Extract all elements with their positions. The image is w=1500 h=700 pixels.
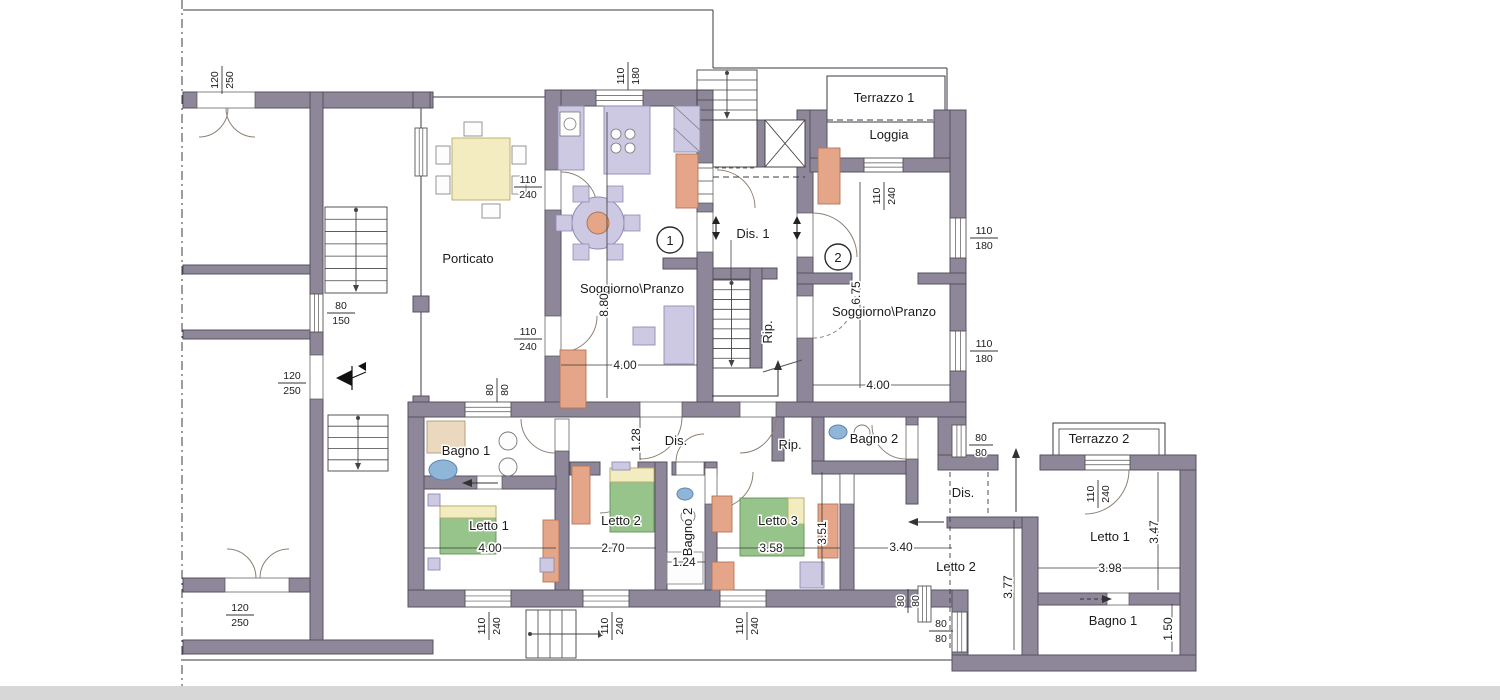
svg-text:110: 110	[1085, 485, 1097, 502]
room-label-letto2-right: Letto 2	[936, 559, 976, 574]
room-label-bagno2-small: Bagno 2	[680, 508, 695, 556]
svg-text:150: 150	[332, 315, 350, 327]
svg-text:80: 80	[484, 384, 496, 396]
room-label-terrazzo-2: Terrazzo 2	[1069, 431, 1130, 446]
svg-text:240: 240	[614, 617, 626, 635]
dim-2-70: 2.70	[601, 541, 625, 555]
dim-3-47: 3.47	[1147, 520, 1161, 544]
room-label-dis-1: Dis. 1	[736, 226, 769, 241]
dim-1-50: 1.50	[1161, 617, 1175, 641]
dim-3-58: 3.58	[759, 541, 783, 555]
svg-text:180: 180	[975, 240, 993, 252]
svg-text:240: 240	[749, 617, 761, 635]
svg-text:110: 110	[734, 617, 746, 634]
dim-4-00-sogg1: 4.00	[613, 358, 637, 372]
svg-text:80: 80	[335, 300, 347, 312]
room-label-terrazzo-1: Terrazzo 1	[854, 90, 915, 105]
svg-text:80: 80	[975, 447, 987, 459]
dim-3-77: 3.77	[1001, 575, 1015, 599]
svg-text:120: 120	[283, 370, 301, 382]
dim-4-00-letto1: 4.00	[478, 541, 502, 555]
dim-6-75: 6.75	[849, 281, 863, 305]
svg-text:180: 180	[630, 67, 642, 85]
dim-3-98: 3.98	[1098, 561, 1122, 575]
svg-text:110: 110	[871, 187, 883, 204]
svg-text:250: 250	[231, 617, 249, 629]
unit-1-number: 1	[666, 233, 673, 248]
svg-text:240: 240	[491, 617, 503, 635]
svg-text:110: 110	[976, 225, 993, 237]
dim-3-40: 3.40	[889, 540, 913, 554]
svg-text:110: 110	[520, 174, 537, 186]
svg-text:80: 80	[935, 633, 947, 645]
room-label-letto3: Letto 3	[758, 513, 798, 528]
svg-text:80: 80	[975, 432, 987, 444]
dim-3-51: 3.51	[815, 521, 829, 545]
svg-text:80: 80	[935, 618, 947, 630]
dim-1-24: 1.24	[672, 555, 696, 569]
room-label-rip-corridor: Rip.	[778, 437, 801, 452]
room-label-dis-corridor: Dis.	[665, 433, 687, 448]
svg-text:110: 110	[476, 617, 488, 634]
room-label-bagno2-big: Bagno 2	[850, 431, 898, 446]
svg-text:120: 120	[209, 71, 221, 89]
room-label-letto1-left: Letto 1	[469, 518, 509, 533]
dim-1-28: 1.28	[629, 428, 643, 452]
room-label-soggiorno-1: Soggiorno\Pranzo	[580, 281, 684, 296]
svg-text:240: 240	[1100, 485, 1112, 503]
svg-text:120: 120	[231, 602, 249, 614]
svg-text:240: 240	[519, 189, 537, 201]
svg-text:80: 80	[910, 595, 922, 607]
room-label-bagno1-right: Bagno 1	[1089, 613, 1137, 628]
room-label-bagno1-left: Bagno 1	[442, 443, 490, 458]
room-label-letto1-right: Letto 1	[1090, 529, 1130, 544]
svg-text:180: 180	[975, 353, 993, 365]
svg-text:240: 240	[886, 187, 898, 205]
svg-text:110: 110	[976, 338, 993, 350]
svg-text:110: 110	[520, 326, 537, 338]
room-label-soggiorno-2: Soggiorno\Pranzo	[832, 304, 936, 319]
svg-text:240: 240	[519, 341, 537, 353]
svg-text:250: 250	[224, 71, 236, 89]
room-label-rip-center: Rip.	[760, 320, 775, 343]
svg-text:110: 110	[615, 67, 627, 84]
svg-text:80: 80	[499, 384, 511, 396]
floor-plan-drawing: Porticato Soggiorno\Pranzo Dis. 1 Rip. L…	[0, 0, 1500, 700]
room-label-dis-right: Dis.	[952, 485, 974, 500]
room-label-letto2-left: Letto 2	[601, 513, 641, 528]
svg-text:110: 110	[599, 617, 611, 634]
dim-4-00-sogg2: 4.00	[866, 378, 890, 392]
svg-text:250: 250	[283, 385, 301, 397]
unit-2-number: 2	[834, 250, 841, 265]
floor-plan-page: Porticato Soggiorno\Pranzo Dis. 1 Rip. L…	[0, 0, 1500, 700]
room-label-loggia: Loggia	[869, 127, 909, 142]
dim-8-80: 8.80	[597, 293, 611, 317]
room-label-porticato: Porticato	[442, 251, 493, 266]
svg-text:80: 80	[895, 595, 907, 607]
